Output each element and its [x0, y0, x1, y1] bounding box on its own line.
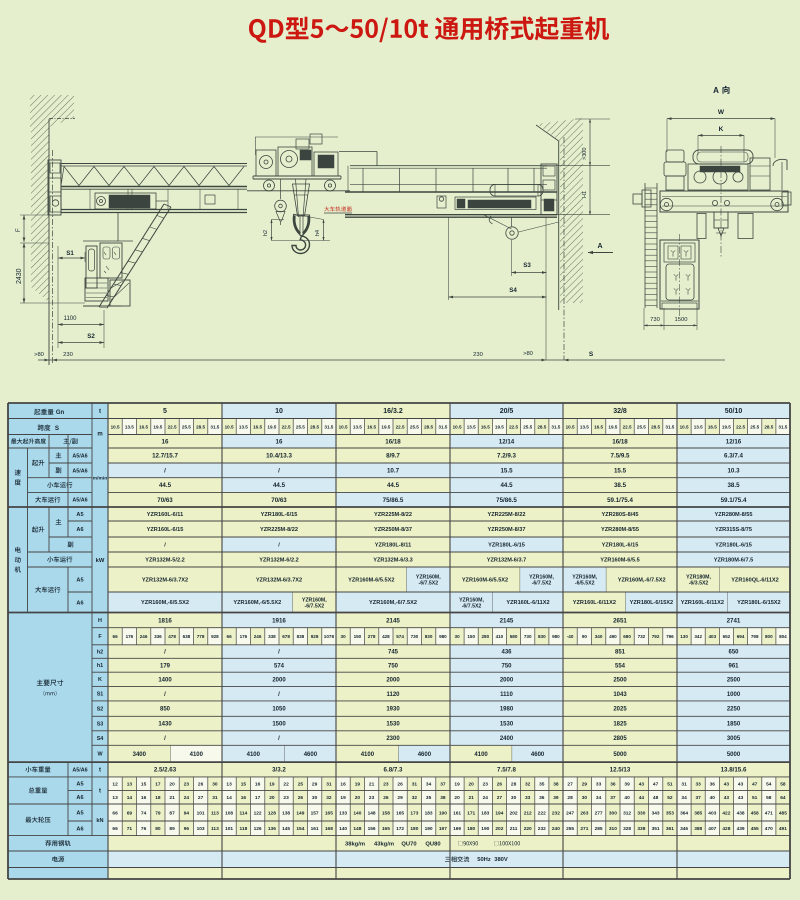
svg-text:20: 20 — [269, 795, 275, 801]
svg-text:70/63: 70/63 — [157, 497, 173, 504]
svg-text:30: 30 — [582, 795, 588, 801]
svg-text:YZR160L-6/11X2: YZR160L-6/11X2 — [506, 600, 549, 606]
svg-text:25.5: 25.5 — [637, 424, 646, 429]
svg-text:1400: 1400 — [158, 677, 172, 683]
svg-text:1100: 1100 — [64, 316, 78, 322]
svg-text:75/86.5: 75/86.5 — [383, 497, 404, 504]
svg-text:202: 202 — [510, 810, 518, 816]
svg-text:89: 89 — [169, 826, 175, 832]
svg-text:23: 23 — [184, 781, 190, 787]
svg-text:33: 33 — [525, 795, 531, 801]
svg-text:2741: 2741 — [727, 617, 741, 624]
svg-text:407: 407 — [708, 826, 716, 832]
svg-text:YZR225M-8/22: YZR225M-8/22 — [260, 527, 298, 533]
svg-text:19.5: 19.5 — [381, 424, 390, 429]
svg-text:336: 336 — [154, 634, 162, 639]
svg-text:25.5: 25.5 — [750, 424, 759, 429]
svg-text:694: 694 — [737, 634, 745, 639]
svg-text:K: K — [98, 677, 102, 683]
svg-text:778: 778 — [197, 634, 205, 639]
svg-text:43: 43 — [724, 781, 730, 787]
svg-text:25.5: 25.5 — [296, 424, 305, 429]
svg-text:A5/A6: A5/A6 — [72, 468, 87, 474]
svg-text:4600: 4600 — [531, 752, 545, 758]
svg-text:26: 26 — [497, 781, 503, 787]
svg-text:113: 113 — [211, 826, 219, 832]
svg-text:330: 330 — [637, 810, 645, 816]
svg-text:43: 43 — [724, 795, 730, 801]
svg-text:1120: 1120 — [386, 692, 400, 698]
svg-text:>80: >80 — [523, 351, 533, 357]
svg-text:A6: A6 — [76, 795, 83, 801]
svg-text:4100: 4100 — [361, 752, 375, 758]
svg-text:YZR132M-6/3.7X2: YZR132M-6/3.7X2 — [142, 578, 188, 584]
svg-text:44.5: 44.5 — [273, 482, 286, 489]
svg-text:YZR160M-6/5.5X2: YZR160M-6/5.5X2 — [462, 578, 508, 584]
svg-text:278: 278 — [368, 634, 376, 639]
svg-text:24: 24 — [184, 795, 190, 801]
svg-text:165: 165 — [325, 810, 333, 816]
svg-text:180: 180 — [467, 826, 475, 832]
svg-text:16: 16 — [141, 795, 147, 801]
svg-text:15: 15 — [241, 781, 247, 787]
svg-text:-6/7.5X2: -6/7.5X2 — [462, 604, 482, 610]
svg-text:20: 20 — [454, 795, 460, 801]
svg-text:338: 338 — [268, 634, 276, 639]
svg-text:36: 36 — [539, 795, 545, 801]
svg-text:1078: 1078 — [324, 634, 335, 639]
svg-text:27: 27 — [497, 795, 503, 801]
svg-text:16/18: 16/18 — [385, 438, 401, 445]
svg-text:S2: S2 — [87, 333, 95, 340]
svg-text:136: 136 — [268, 826, 276, 832]
svg-text:S3: S3 — [523, 262, 531, 269]
svg-text:168: 168 — [325, 826, 333, 832]
svg-text:21: 21 — [169, 795, 175, 801]
svg-text:247: 247 — [566, 810, 574, 816]
svg-text:47: 47 — [653, 781, 659, 787]
svg-text:28.5: 28.5 — [310, 424, 319, 429]
svg-text:22.5: 22.5 — [396, 424, 405, 429]
svg-text:140: 140 — [353, 810, 361, 816]
svg-text:1825: 1825 — [613, 722, 627, 728]
svg-text:180: 180 — [410, 826, 418, 832]
svg-text:58: 58 — [780, 781, 786, 787]
svg-text:491: 491 — [779, 826, 787, 832]
svg-text:15.5: 15.5 — [614, 468, 627, 475]
svg-text:12/16: 12/16 — [726, 438, 742, 445]
svg-text:340: 340 — [595, 634, 603, 639]
svg-text:18: 18 — [155, 795, 161, 801]
svg-text:47: 47 — [752, 781, 758, 787]
svg-text:94: 94 — [184, 810, 190, 816]
svg-text:353: 353 — [666, 810, 674, 816]
svg-text:A5/A6: A5/A6 — [72, 453, 87, 459]
svg-text:F: F — [16, 228, 22, 232]
svg-text:2.5/2.63: 2.5/2.63 — [154, 767, 177, 774]
svg-text:176: 176 — [240, 634, 248, 639]
svg-text:961: 961 — [728, 663, 739, 669]
svg-text:2400: 2400 — [500, 736, 514, 742]
svg-text:A5/A6: A5/A6 — [72, 498, 87, 504]
svg-text:YZR160M,-6/7.5X2: YZR160M,-6/7.5X2 — [369, 600, 417, 606]
svg-text:277: 277 — [595, 810, 603, 816]
svg-text:QU70: QU70 — [401, 841, 416, 847]
svg-text:37: 37 — [440, 781, 446, 787]
svg-text:S1: S1 — [66, 250, 74, 257]
svg-text:455: 455 — [751, 826, 759, 832]
svg-text:YZR132M-6/3.3: YZR132M-6/3.3 — [373, 558, 412, 564]
svg-text:28.5: 28.5 — [196, 424, 205, 429]
svg-text:928: 928 — [311, 634, 319, 639]
svg-text:2000: 2000 — [500, 677, 514, 683]
svg-text:16.5: 16.5 — [139, 424, 148, 429]
svg-text:122: 122 — [254, 810, 262, 816]
svg-text:19.5: 19.5 — [267, 424, 276, 429]
svg-text:96: 96 — [184, 826, 190, 832]
svg-text:13.5: 13.5 — [467, 424, 476, 429]
svg-text:6.3/7.4: 6.3/7.4 — [724, 453, 743, 460]
svg-text:8/9.7: 8/9.7 — [386, 453, 400, 460]
svg-text:928: 928 — [211, 634, 219, 639]
svg-text:13.5: 13.5 — [125, 424, 134, 429]
svg-text:90: 90 — [582, 634, 588, 639]
svg-text:28.5: 28.5 — [651, 424, 660, 429]
svg-text:71: 71 — [127, 826, 133, 832]
svg-text:19.5: 19.5 — [608, 424, 617, 429]
svg-text:22.5: 22.5 — [509, 424, 518, 429]
svg-text:t: t — [99, 789, 101, 795]
svg-text:YZR160M-6/5.5: YZR160M-6/5.5 — [600, 558, 639, 564]
svg-text:52: 52 — [667, 795, 673, 801]
svg-text:10.5: 10.5 — [111, 424, 120, 429]
svg-text:403: 403 — [708, 810, 716, 816]
svg-text:403: 403 — [708, 634, 716, 639]
svg-text:S2: S2 — [97, 707, 104, 713]
svg-text:338: 338 — [637, 826, 645, 832]
svg-text:2430: 2430 — [16, 268, 23, 284]
svg-text:165: 165 — [396, 810, 404, 816]
svg-text:149: 149 — [296, 810, 304, 816]
svg-text:A5: A5 — [76, 512, 83, 518]
svg-text:25: 25 — [298, 781, 304, 787]
svg-text:28.5: 28.5 — [537, 424, 546, 429]
svg-text:22: 22 — [283, 781, 289, 787]
svg-text:13.5: 13.5 — [239, 424, 248, 429]
svg-text:A5: A5 — [76, 782, 83, 788]
svg-text:2500: 2500 — [727, 677, 741, 683]
svg-text:22.5: 22.5 — [168, 424, 177, 429]
svg-text:800: 800 — [765, 634, 773, 639]
svg-text:38.5: 38.5 — [727, 482, 740, 489]
svg-text:19: 19 — [355, 781, 361, 787]
svg-text:680: 680 — [623, 634, 631, 639]
svg-text:158: 158 — [382, 810, 390, 816]
svg-text:38.5: 38.5 — [614, 482, 627, 489]
svg-text:172: 172 — [396, 826, 404, 832]
svg-text:YZR180L-6/15: YZR180L-6/15 — [715, 543, 752, 549]
svg-text:179: 179 — [160, 663, 171, 669]
svg-text:YZR180L-6/15: YZR180L-6/15 — [488, 543, 525, 549]
svg-text:58: 58 — [766, 795, 772, 801]
svg-text:59.1/75.4: 59.1/75.4 — [721, 497, 747, 504]
svg-text:22.5: 22.5 — [736, 424, 745, 429]
svg-text:QU80: QU80 — [425, 841, 440, 847]
svg-text:851: 851 — [615, 650, 626, 656]
svg-text:16.5: 16.5 — [481, 424, 490, 429]
svg-text:43kg/m: 43kg/m — [374, 841, 394, 847]
svg-text:4100: 4100 — [247, 752, 261, 758]
svg-text:35: 35 — [539, 781, 545, 787]
svg-text:5000: 5000 — [613, 752, 627, 758]
svg-text:10.4/13.3: 10.4/13.3 — [266, 453, 292, 460]
svg-text:20: 20 — [169, 781, 175, 787]
svg-text:165: 165 — [382, 826, 390, 832]
svg-text:183: 183 — [481, 810, 489, 816]
svg-text:108: 108 — [225, 810, 233, 816]
svg-text:436: 436 — [501, 650, 512, 656]
svg-text:-6/3.5X2: -6/3.5X2 — [689, 581, 709, 587]
svg-text:12: 12 — [112, 781, 118, 787]
svg-text:32: 32 — [525, 781, 531, 787]
svg-text:1500: 1500 — [675, 317, 688, 323]
svg-text:1110: 1110 — [500, 692, 513, 698]
svg-text:43: 43 — [738, 781, 744, 787]
svg-text:1430: 1430 — [158, 722, 172, 728]
svg-text:30: 30 — [511, 795, 517, 801]
svg-text:490: 490 — [609, 634, 617, 639]
svg-text:428: 428 — [382, 634, 390, 639]
svg-text:246: 246 — [254, 634, 262, 639]
svg-text:YZR160L-6/15: YZR160L-6/15 — [147, 527, 184, 533]
svg-text:YZR280S-8/45: YZR280S-8/45 — [601, 512, 638, 518]
svg-text:255: 255 — [566, 826, 574, 832]
svg-text:kW: kW — [96, 558, 105, 564]
svg-text:70/63: 70/63 — [271, 497, 287, 504]
svg-text:38: 38 — [440, 795, 446, 801]
svg-text:16.5: 16.5 — [367, 424, 376, 429]
svg-text:13.5: 13.5 — [353, 424, 362, 429]
svg-text:246: 246 — [140, 634, 148, 639]
svg-text:30: 30 — [455, 634, 461, 639]
svg-text:830: 830 — [538, 634, 546, 639]
svg-text:S4: S4 — [509, 287, 517, 294]
svg-text:16: 16 — [340, 781, 346, 787]
svg-text:38kg/m: 38kg/m — [345, 841, 365, 847]
svg-text:H1: H1 — [582, 191, 588, 198]
svg-text:148: 148 — [368, 810, 376, 816]
svg-text:145: 145 — [282, 826, 290, 832]
svg-text:838: 838 — [297, 634, 305, 639]
svg-text:29: 29 — [397, 795, 403, 801]
svg-text:-6/7.5X2: -6/7.5X2 — [532, 581, 552, 587]
svg-text:YZR180L-6/15X2: YZR180L-6/15X2 — [630, 600, 674, 606]
svg-text:2145: 2145 — [500, 617, 514, 624]
svg-text:YZR160L-6/11X2: YZR160L-6/11X2 — [573, 600, 616, 606]
svg-text:21: 21 — [369, 781, 375, 787]
svg-text:44.5: 44.5 — [387, 482, 400, 489]
svg-text:10.3: 10.3 — [727, 468, 740, 475]
svg-text:YZR160M,-6/7.5X2: YZR160M,-6/7.5X2 — [618, 578, 666, 584]
svg-text:650: 650 — [728, 650, 739, 656]
svg-text:YZR132M-6/3.7X2: YZR132M-6/3.7X2 — [256, 578, 302, 584]
svg-text:3/3.2: 3/3.2 — [272, 767, 286, 774]
svg-text:44.5: 44.5 — [500, 482, 513, 489]
svg-text:26: 26 — [397, 781, 403, 787]
svg-text:830: 830 — [425, 634, 433, 639]
svg-text:YZR132M-6/2.2: YZR132M-6/2.2 — [259, 558, 298, 564]
svg-text:A5/A6: A5/A6 — [72, 767, 87, 773]
svg-text:21: 21 — [469, 795, 475, 801]
svg-text:13.5: 13.5 — [580, 424, 589, 429]
svg-text:161: 161 — [453, 810, 461, 816]
svg-text:310: 310 — [609, 826, 617, 832]
svg-text:271: 271 — [580, 826, 588, 832]
svg-text:2000: 2000 — [386, 677, 400, 683]
svg-text:A6: A6 — [76, 527, 83, 533]
svg-text:343: 343 — [652, 810, 660, 816]
svg-text:51: 51 — [667, 781, 673, 787]
svg-text:19.5: 19.5 — [153, 424, 162, 429]
svg-text:74: 74 — [141, 810, 147, 816]
svg-text:485: 485 — [779, 810, 787, 816]
svg-text:148: 148 — [353, 826, 361, 832]
svg-text:40: 40 — [624, 795, 630, 801]
svg-text:39: 39 — [624, 781, 630, 787]
svg-text:133: 133 — [339, 810, 347, 816]
svg-text:850: 850 — [160, 707, 171, 713]
svg-text:730: 730 — [411, 634, 419, 639]
svg-text:23: 23 — [483, 781, 489, 787]
svg-text:1000: 1000 — [727, 692, 741, 698]
svg-text:10.5: 10.5 — [339, 424, 348, 429]
svg-text:31.5: 31.5 — [324, 424, 333, 429]
svg-text:30: 30 — [312, 795, 318, 801]
svg-text:554: 554 — [615, 663, 626, 669]
svg-text:50/10: 50/10 — [725, 408, 743, 415]
svg-text:574: 574 — [396, 634, 404, 639]
svg-text:36: 36 — [710, 781, 716, 787]
svg-text:14: 14 — [226, 795, 232, 801]
svg-text:161: 161 — [311, 826, 319, 832]
svg-text:37: 37 — [610, 795, 616, 801]
svg-text:792: 792 — [652, 634, 660, 639]
svg-text:138: 138 — [282, 810, 290, 816]
svg-text:t: t — [99, 408, 101, 415]
svg-text:10.5: 10.5 — [680, 424, 689, 429]
svg-text:66: 66 — [112, 810, 118, 816]
svg-text:-6/5.5X2: -6/5.5X2 — [575, 581, 595, 587]
svg-text:YZR250M-8/37: YZR250M-8/37 — [374, 527, 412, 533]
svg-text:439: 439 — [737, 826, 745, 832]
svg-text:-6/7.5X2: -6/7.5X2 — [304, 604, 324, 610]
svg-text:19.5: 19.5 — [722, 424, 731, 429]
svg-text:15.5: 15.5 — [500, 468, 513, 475]
svg-text:211: 211 — [510, 826, 518, 832]
svg-text:33: 33 — [696, 781, 702, 787]
svg-text:194: 194 — [495, 810, 503, 816]
svg-text:13: 13 — [226, 781, 232, 787]
svg-text:470: 470 — [765, 826, 773, 832]
svg-text:438: 438 — [737, 810, 745, 816]
svg-text:118: 118 — [240, 826, 248, 832]
svg-text:13.5: 13.5 — [694, 424, 703, 429]
svg-text:4100: 4100 — [474, 752, 488, 758]
svg-text:27: 27 — [198, 795, 204, 801]
svg-text:197: 197 — [439, 826, 447, 832]
svg-text:YZR160M,-6/5.5X2: YZR160M,-6/5.5X2 — [233, 600, 281, 606]
svg-text:31.5: 31.5 — [665, 424, 674, 429]
svg-text:>300: >300 — [582, 148, 588, 160]
svg-text:28: 28 — [567, 795, 573, 801]
svg-text:183: 183 — [425, 810, 433, 816]
svg-text:190: 190 — [425, 826, 433, 832]
svg-text:169: 169 — [453, 826, 461, 832]
svg-text:1043: 1043 — [613, 692, 627, 698]
svg-text:10.5: 10.5 — [566, 424, 575, 429]
svg-text:7.2/9.3: 7.2/9.3 — [497, 453, 516, 460]
svg-text:240: 240 — [552, 826, 560, 832]
svg-text:1500: 1500 — [272, 722, 286, 728]
svg-text:1530: 1530 — [386, 722, 400, 728]
svg-text:126: 126 — [254, 826, 262, 832]
svg-text:730: 730 — [650, 317, 660, 323]
svg-text:t: t — [99, 768, 101, 774]
svg-text:6.8/7.3: 6.8/7.3 — [384, 767, 403, 774]
svg-text:220: 220 — [524, 826, 532, 832]
svg-text:2000: 2000 — [272, 677, 286, 683]
svg-text:280: 280 — [481, 634, 489, 639]
svg-text:31.5: 31.5 — [438, 424, 447, 429]
svg-text:A6: A6 — [76, 600, 83, 606]
svg-text:44: 44 — [639, 795, 645, 801]
svg-text:17: 17 — [155, 781, 161, 787]
svg-text:14: 14 — [127, 795, 133, 801]
svg-text:5000: 5000 — [727, 752, 741, 758]
svg-text:346: 346 — [680, 826, 688, 832]
svg-text:202: 202 — [495, 826, 503, 832]
svg-text:796: 796 — [666, 634, 674, 639]
svg-text:80: 80 — [155, 826, 161, 832]
svg-text:1930: 1930 — [386, 707, 400, 713]
svg-text:64: 64 — [780, 795, 786, 801]
svg-text:30: 30 — [212, 781, 218, 787]
svg-text:32: 32 — [412, 795, 418, 801]
svg-text:2651: 2651 — [613, 617, 627, 624]
svg-text:A5: A5 — [76, 811, 83, 817]
svg-text:1530: 1530 — [500, 722, 514, 728]
svg-text:140: 140 — [339, 826, 347, 832]
svg-text:173: 173 — [410, 810, 418, 816]
svg-text:16: 16 — [276, 438, 283, 445]
svg-text:28.5: 28.5 — [424, 424, 433, 429]
svg-text:YZR315S-8/75: YZR315S-8/75 — [715, 527, 752, 533]
svg-text:1850: 1850 — [727, 722, 741, 728]
svg-text:>80: >80 — [34, 352, 44, 358]
svg-text:798: 798 — [751, 634, 759, 639]
svg-text:25.5: 25.5 — [523, 424, 532, 429]
svg-text:114: 114 — [240, 810, 248, 816]
svg-text:kN: kN — [96, 818, 103, 824]
svg-text:263: 263 — [580, 810, 588, 816]
svg-text:h4: h4 — [315, 230, 321, 236]
svg-text:33: 33 — [596, 781, 602, 787]
svg-text:230: 230 — [63, 352, 73, 358]
svg-text:16.5: 16.5 — [708, 424, 717, 429]
svg-text:361: 361 — [666, 826, 674, 832]
svg-text:28.5: 28.5 — [764, 424, 773, 429]
svg-text:69: 69 — [127, 810, 133, 816]
